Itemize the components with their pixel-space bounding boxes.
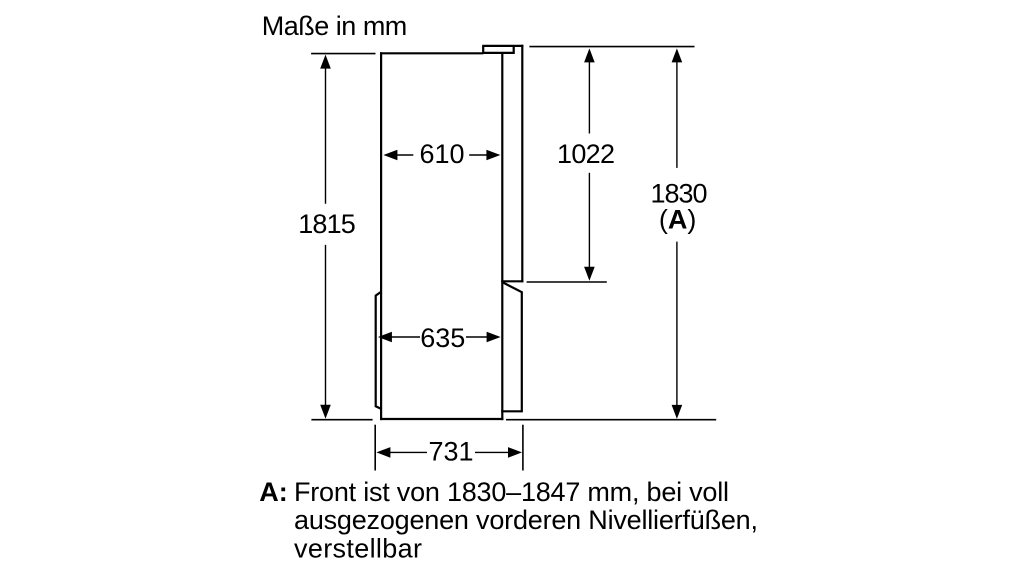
svg-text:1022: 1022 [557, 139, 615, 169]
svg-text:(A): (A) [659, 204, 697, 234]
svg-text:635: 635 [420, 323, 465, 353]
svg-text:verstellbar: verstellbar [294, 534, 422, 564]
svg-text:ausgezogenen vorderen Nivellie: ausgezogenen vorderen Nivellierfüßen, [294, 505, 758, 535]
svg-text:610: 610 [419, 139, 464, 169]
svg-text:Maße in mm: Maße in mm [262, 11, 408, 41]
svg-text:Front ist von 1830–1847 mm, be: Front ist von 1830–1847 mm, bei voll [294, 477, 729, 507]
svg-text:731: 731 [428, 437, 473, 467]
svg-text:1815: 1815 [298, 209, 356, 239]
svg-text:A:: A: [259, 477, 288, 507]
